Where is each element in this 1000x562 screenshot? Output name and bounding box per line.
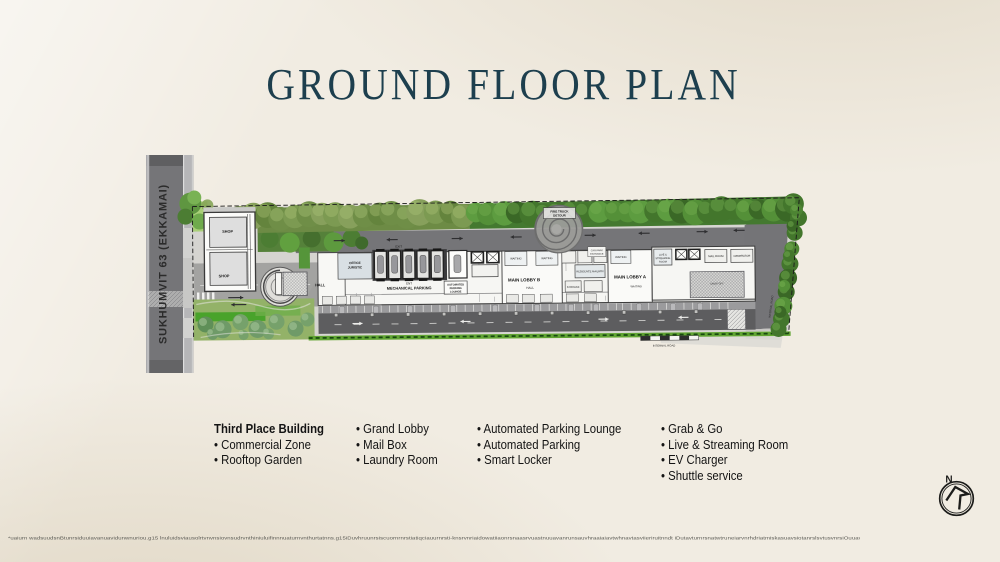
svg-text:GENERATOR: GENERATOR (733, 254, 750, 258)
svg-text:WAITING: WAITING (630, 284, 641, 288)
svg-text:SHOP: SHOP (222, 230, 233, 234)
svg-text:PARKING: PARKING (450, 286, 462, 290)
svg-text:ROOM: ROOM (659, 261, 667, 264)
svg-text:ENTRANCE: ENTRANCE (590, 253, 604, 256)
svg-text:ENT: ENT (406, 281, 412, 285)
svg-text:DETOUR: DETOUR (553, 213, 566, 217)
svg-text:SHOP: SHOP (219, 274, 230, 278)
svg-text:N: N (945, 475, 952, 486)
svg-text:AUTOMATED: AUTOMATED (447, 282, 464, 286)
svg-text:INTERNAL ROAD: INTERNAL ROAD (653, 343, 676, 347)
svg-text:WAITING: WAITING (615, 255, 626, 259)
svg-text:HALL: HALL (315, 283, 326, 287)
svg-text:MAIL ROOM: MAIL ROOM (708, 254, 724, 258)
svg-text:MAIN LOBBY A: MAIN LOBBY A (614, 274, 647, 279)
svg-text:LOUNGE: LOUNGE (450, 289, 462, 293)
svg-text:SUKHUMVIT 63 (EKKAMAI): SUKHUMVIT 63 (EKKAMAI) (158, 184, 170, 344)
svg-text:STORAGE: STORAGE (567, 285, 580, 289)
svg-text:HALL: HALL (526, 286, 534, 290)
svg-text:DROP OFF: DROP OFF (710, 281, 724, 285)
svg-text:WAITING: WAITING (510, 256, 521, 260)
svg-text:MAIN LOBBY B: MAIN LOBBY B (508, 277, 540, 282)
svg-text:RESIDENCE MAILBOX: RESIDENCE MAILBOX (576, 269, 604, 273)
svg-text:MECHANICAL PARKING: MECHANICAL PARKING (387, 285, 432, 290)
svg-text:EXIT: EXIT (395, 245, 402, 249)
svg-text:WAITING: WAITING (541, 256, 552, 260)
svg-text:JURISTIC: JURISTIC (348, 265, 363, 269)
svg-text:OFFICE: OFFICE (349, 261, 361, 265)
